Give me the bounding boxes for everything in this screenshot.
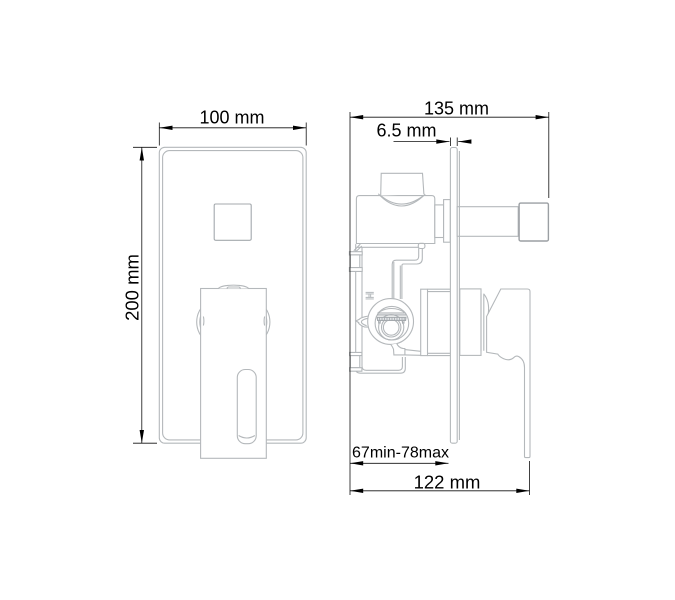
svg-text:200 mm: 200 mm: [121, 254, 142, 321]
svg-text:100 mm: 100 mm: [199, 107, 264, 127]
svg-text:122 mm: 122 mm: [414, 471, 481, 492]
svg-text:67min-78max: 67min-78max: [352, 445, 449, 462]
svg-text:6.5 mm: 6.5 mm: [376, 120, 436, 140]
svg-text:135 mm: 135 mm: [424, 98, 489, 118]
